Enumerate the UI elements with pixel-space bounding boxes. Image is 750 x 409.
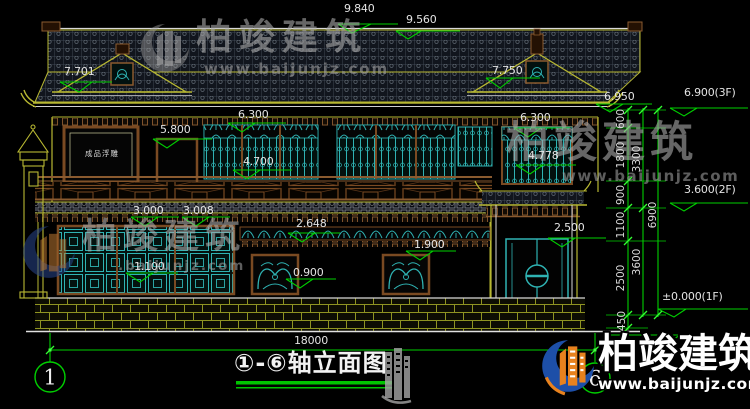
watermark-bottom-right: 柏竣建筑 www.baijunjz.com bbox=[540, 334, 750, 398]
carved-frieze bbox=[240, 227, 490, 240]
level-label-1f: ±0.000(1F) bbox=[662, 291, 723, 302]
vdim-label-450: 450 bbox=[617, 311, 628, 331]
vdim-label-2500: 2500 bbox=[616, 265, 627, 292]
dim-label-6950: 6.950 bbox=[604, 91, 635, 102]
vdim-label-6900: 6900 bbox=[648, 202, 659, 229]
vdim-label-3600: 3600 bbox=[632, 249, 643, 276]
ridge-finial-right bbox=[628, 22, 642, 31]
vdim-label-1100: 1100 bbox=[616, 212, 627, 239]
vdim-label-600: 600 bbox=[616, 109, 627, 129]
dim-label-6300-right: 6.300 bbox=[520, 112, 551, 123]
dim-label-2500: 2.500 bbox=[554, 222, 585, 233]
dim-label-0900: 0.900 bbox=[293, 267, 324, 278]
dim-label-1900: 1.900 bbox=[414, 239, 445, 250]
watermark-url-text: www.baijunjz.com bbox=[204, 62, 389, 77]
baijun-logo-icon bbox=[138, 20, 192, 74]
watermark-brand-text: 柏竣建筑 bbox=[598, 334, 750, 374]
ridge-finial-left bbox=[42, 22, 60, 31]
cad-elevation-screenshot: 9.840 9.560 7.701 7.750 6.950 6.900(3F) … bbox=[0, 0, 750, 409]
plinth-base bbox=[26, 298, 640, 332]
baijun-logo-icon bbox=[540, 334, 596, 398]
dim-label-3000: 3.000 bbox=[133, 205, 164, 216]
level-label-3f: 6.900(3F) bbox=[684, 87, 736, 98]
watermark-brand-text: 柏竣建筑 bbox=[82, 220, 246, 255]
dim-label-4700: 4.700 bbox=[243, 156, 274, 167]
baijun-logo-icon bbox=[20, 220, 78, 282]
dim-label-9840: 9.840 bbox=[344, 3, 375, 14]
vdim-label-1800: 1800 bbox=[616, 142, 627, 169]
watermark-left: 柏竣建筑 .baijunjz.com bbox=[20, 220, 246, 282]
level-label-2f: 3.600(2F) bbox=[684, 184, 736, 195]
dim-label-total-width: 18000 bbox=[294, 335, 328, 346]
watermark-brand-text: 柏竣建筑 bbox=[196, 20, 389, 56]
dim-label-5800: 5.800 bbox=[160, 124, 191, 135]
vdim-label-3300: 3300 bbox=[632, 146, 643, 173]
dim-label-1100: 1.100 bbox=[134, 261, 165, 272]
dim-label-4778: 4.778 bbox=[528, 150, 559, 161]
title-underline bbox=[236, 381, 392, 389]
dim-label-9560: 9.560 bbox=[406, 14, 437, 25]
axis-number-1: 1 bbox=[43, 368, 56, 389]
watermark-url-text: www.baijunjz.com bbox=[598, 377, 750, 393]
dim-label-3008: 3.008 bbox=[183, 205, 214, 216]
vdim-label-900: 900 bbox=[616, 185, 627, 205]
relief-panel-label: 成品浮雕 bbox=[66, 150, 138, 158]
dim-label-6300-left: 6.300 bbox=[238, 109, 269, 120]
small-lattice-window bbox=[458, 127, 492, 166]
watermark-url-text: www.baijunjz.com bbox=[562, 169, 739, 184]
dim-label-2648: 2.648 bbox=[296, 218, 327, 229]
dim-label-7701: 7.701 bbox=[64, 66, 95, 77]
balcony-railing bbox=[35, 177, 492, 222]
drawing-title: ①-⑥轴立面图 bbox=[234, 350, 388, 376]
entry-porch bbox=[475, 181, 591, 313]
dim-label-7750: 7.750 bbox=[492, 65, 523, 76]
watermark-top: 柏竣建筑 www.baijunjz.com bbox=[138, 20, 389, 77]
